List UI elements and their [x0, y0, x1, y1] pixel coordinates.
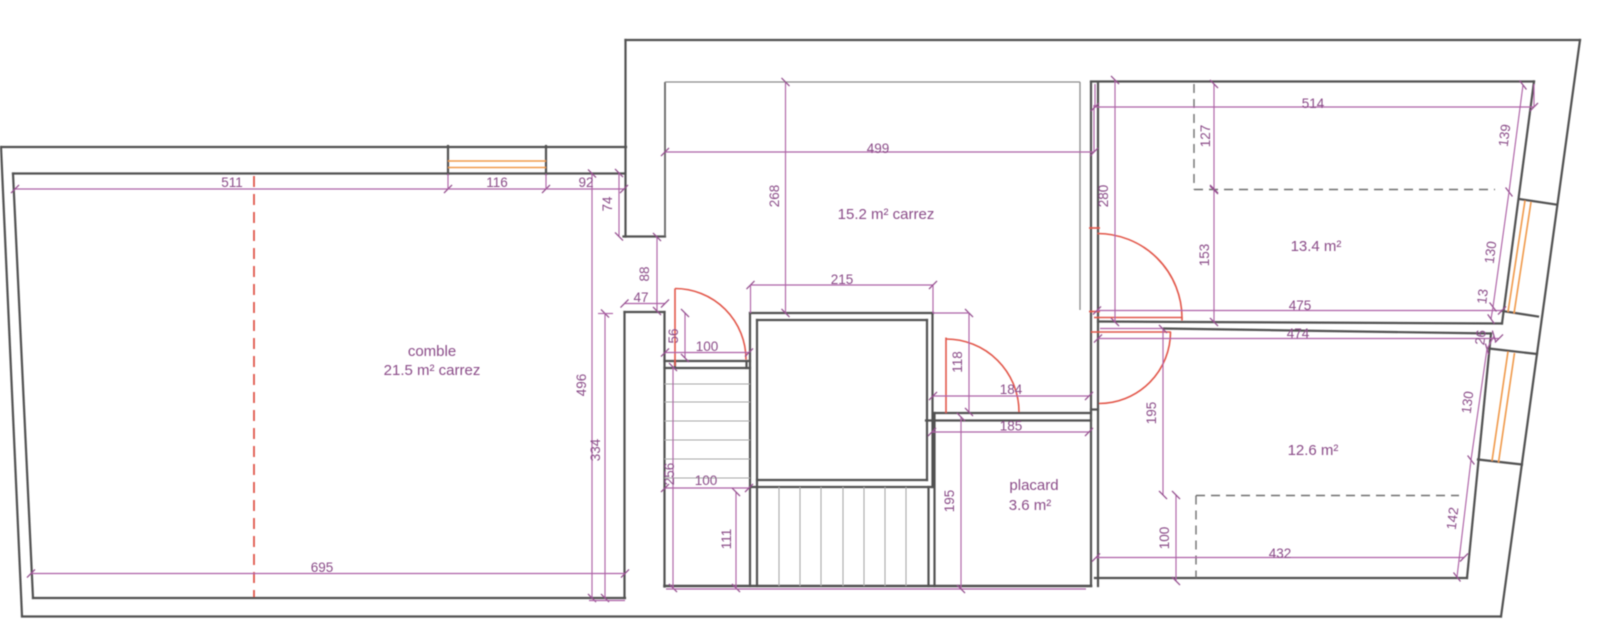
svg-text:475: 475: [1289, 298, 1312, 313]
svg-text:153: 153: [1197, 244, 1212, 267]
svg-text:195: 195: [942, 490, 957, 513]
svg-text:13: 13: [1474, 288, 1491, 305]
svg-text:74: 74: [600, 196, 615, 212]
svg-text:100: 100: [696, 339, 719, 354]
svg-text:12.6 m²: 12.6 m²: [1288, 442, 1339, 459]
svg-text:26: 26: [1472, 329, 1489, 346]
svg-text:21.5 m² carrez: 21.5 m² carrez: [384, 362, 481, 379]
svg-text:432: 432: [1269, 546, 1292, 561]
svg-text:13.4 m²: 13.4 m²: [1291, 238, 1342, 255]
svg-text:215: 215: [831, 272, 854, 287]
svg-text:3.6 m²: 3.6 m²: [1009, 497, 1052, 514]
svg-text:100: 100: [695, 473, 718, 488]
svg-text:118: 118: [950, 351, 965, 373]
svg-text:195: 195: [1144, 402, 1159, 425]
svg-text:139: 139: [1496, 123, 1514, 147]
svg-text:695: 695: [311, 560, 334, 575]
svg-text:116: 116: [486, 175, 508, 190]
svg-text:280: 280: [1096, 185, 1111, 208]
svg-text:334: 334: [588, 438, 603, 461]
svg-text:496: 496: [574, 374, 589, 397]
svg-text:268: 268: [767, 185, 782, 208]
svg-text:placard: placard: [1009, 477, 1058, 494]
svg-text:100: 100: [1157, 527, 1172, 550]
svg-text:256: 256: [662, 463, 677, 486]
svg-text:142: 142: [1444, 506, 1462, 530]
svg-text:511: 511: [221, 175, 243, 190]
svg-text:499: 499: [867, 141, 890, 156]
svg-text:56: 56: [666, 328, 681, 343]
svg-text:474: 474: [1287, 326, 1310, 341]
svg-text:88: 88: [637, 266, 652, 281]
svg-text:92: 92: [578, 175, 593, 190]
svg-text:130: 130: [1482, 240, 1500, 264]
svg-text:47: 47: [633, 290, 648, 305]
svg-text:comble: comble: [408, 343, 456, 360]
svg-text:111: 111: [719, 529, 734, 550]
svg-text:184: 184: [1000, 382, 1023, 397]
svg-text:127: 127: [1198, 125, 1213, 148]
svg-text:514: 514: [1302, 96, 1325, 111]
svg-text:130: 130: [1459, 390, 1477, 414]
svg-text:15.2 m² carrez: 15.2 m² carrez: [838, 206, 935, 223]
svg-text:185: 185: [1000, 419, 1023, 434]
